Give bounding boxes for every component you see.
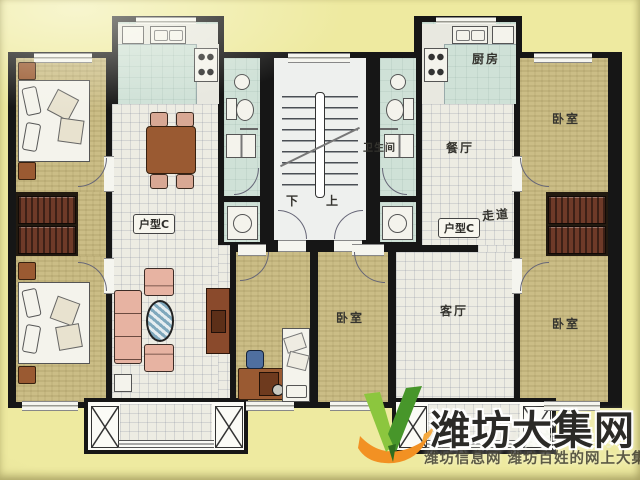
entry-door-arc-left — [278, 210, 307, 239]
label-dining: 餐厅 — [446, 139, 474, 156]
logo-v-right — [388, 386, 422, 452]
washer-icon — [382, 206, 413, 240]
balcony-window-icon — [215, 406, 243, 448]
stove-icon — [424, 48, 448, 82]
window-icon — [288, 53, 350, 63]
label-bathroom: 卫生间 — [363, 139, 396, 154]
toilet-icon — [386, 99, 404, 121]
balcony-floor — [120, 404, 212, 440]
nightstand-icon — [18, 262, 36, 280]
label-bedroom-sw: 卧室 — [336, 309, 364, 326]
nightstand-icon — [18, 162, 36, 180]
dining-table-icon — [146, 126, 196, 174]
pillow-icon — [21, 288, 41, 319]
nightstand-icon — [18, 62, 36, 80]
wardrobe-icon — [18, 226, 76, 254]
balcony-window-icon — [91, 406, 119, 448]
wardrobe-icon — [18, 196, 76, 224]
closet-niche-right — [546, 192, 608, 256]
unit-type-label-right: 户型C — [438, 218, 480, 238]
sink-bowl — [456, 30, 470, 41]
label-bedroom-ne: 卧室 — [552, 110, 580, 127]
tv-icon — [211, 310, 226, 333]
quilt-icon — [47, 89, 79, 121]
bed-icon — [18, 282, 90, 364]
passage-right — [520, 192, 546, 256]
logo-v-left — [364, 392, 395, 452]
towel-bar-icon — [380, 128, 398, 130]
wardrobe-icon — [548, 226, 606, 254]
dining-chair-icon — [176, 112, 194, 127]
pillow-icon — [21, 86, 41, 117]
sink-bowl — [169, 30, 183, 41]
passage-left — [78, 192, 106, 256]
sofa-icon — [114, 290, 142, 364]
stove-icon — [194, 48, 218, 82]
washer-drum — [388, 214, 407, 233]
kitchen-sink-icon — [150, 26, 186, 44]
armchair-icon — [144, 268, 174, 296]
toilet-tank — [403, 98, 414, 120]
stair-up-label: 上 — [326, 192, 338, 209]
quilt-icon — [55, 323, 83, 351]
coffee-table-icon — [146, 300, 174, 342]
washer-icon — [227, 206, 258, 240]
tv-cabinet-icon — [206, 288, 230, 354]
entry-door-arc-right — [334, 210, 363, 239]
quilt-icon — [50, 296, 81, 327]
basin-icon — [390, 74, 406, 90]
corridor-opening — [478, 245, 514, 252]
window-icon — [22, 401, 78, 411]
bath-cabinet-icon — [226, 134, 256, 158]
toilet-icon — [236, 99, 254, 121]
window-icon — [534, 53, 592, 63]
desk-icon — [238, 368, 286, 400]
label-bedroom-se: 卧室 — [552, 315, 580, 332]
pillow-icon — [286, 385, 307, 398]
sink-bowl — [154, 30, 168, 41]
watermark-tagline: 潍坊信息网 潍坊百姓的网上大集 — [424, 447, 640, 468]
armchair-icon — [144, 344, 174, 372]
balcony-left — [84, 398, 248, 454]
site-logo-icon — [348, 386, 436, 468]
pillow-icon — [22, 122, 42, 152]
window-icon — [246, 401, 294, 411]
sheet-icon — [283, 332, 307, 353]
stair-down-label: 下 — [286, 192, 298, 209]
towel-bar-icon — [240, 128, 258, 130]
fridge-icon — [122, 26, 144, 44]
office-chair-icon — [246, 350, 264, 369]
label-living: 客厅 — [440, 302, 468, 319]
balcony-rail — [118, 440, 214, 449]
window-icon — [34, 53, 92, 63]
room-living-right — [396, 252, 514, 402]
sink-bowl — [471, 30, 485, 41]
bed-icon — [18, 80, 90, 162]
dining-chair-icon — [150, 174, 168, 189]
dining-chair-icon — [150, 112, 168, 127]
x-glass-icon — [216, 407, 242, 447]
closet-niche-left — [16, 192, 78, 256]
entry-door-gap — [278, 240, 306, 252]
side-table-icon — [114, 374, 132, 392]
label-kitchen: 厨房 — [472, 50, 500, 67]
basin-icon — [234, 74, 250, 90]
wardrobe-icon — [548, 196, 606, 224]
unit-type-label-left: 户型C — [133, 214, 175, 234]
single-bed-icon — [282, 328, 310, 402]
label-corridor: 走道 — [481, 205, 510, 224]
quilt-icon — [57, 117, 84, 144]
sheet-icon — [286, 351, 309, 371]
kitchen-sink-icon — [452, 26, 488, 44]
x-glass-icon — [92, 407, 118, 447]
floorplan-photo: 下 上 — [0, 0, 640, 480]
pillow-icon — [22, 324, 42, 354]
fridge-icon — [492, 26, 514, 44]
washer-drum — [233, 214, 252, 233]
stairwell: 下 上 — [274, 58, 366, 240]
nightstand-icon — [18, 366, 36, 384]
dining-chair-icon — [176, 174, 194, 189]
